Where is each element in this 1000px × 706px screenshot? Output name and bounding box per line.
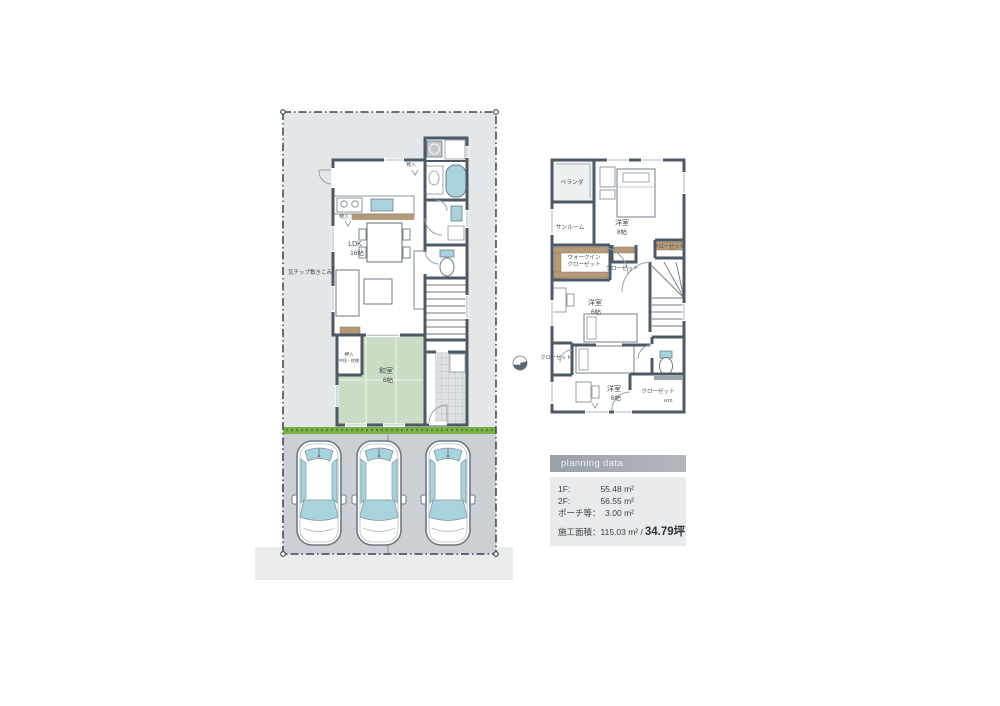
floorplan-drawing: 瓦チップ敷きこみ LDK 16帖 和室 6帖 押入 中段・枕棚 物入 物入 ベラ… — [0, 0, 1000, 706]
washroom-cabinet — [448, 226, 464, 240]
floor-2f-plan — [551, 159, 686, 414]
planning-total-label: 施工面積：115.03 m² / — [558, 527, 643, 537]
closet-mid-label: クローゼット — [605, 264, 638, 272]
planning-row-2f: 2F: 56.55 m² — [558, 495, 634, 507]
dining-set — [359, 223, 410, 262]
planning-row-1f: 1F: 55.48 m² — [558, 483, 634, 495]
closet-bottom-label: クローゼット — [641, 387, 674, 395]
bed-8 — [617, 169, 655, 217]
washitsu-size-label: 6帖 — [383, 375, 394, 384]
oshiire-note-label: 中段・枕棚 — [339, 357, 359, 363]
closet-bottom-note-label: H20 — [664, 398, 673, 404]
grass-strip — [283, 427, 496, 434]
planning-total-value: 34.79坪 — [645, 526, 685, 538]
room6a-label: 洋室 — [588, 298, 602, 307]
planning-row-value: 55.48 m² — [600, 483, 634, 495]
room6b-label: 洋室 — [607, 384, 621, 393]
planning-row-value: 3.00 m² — [605, 507, 634, 519]
ldk-size-label: 16帖 — [350, 248, 364, 257]
wic-label-2: クローゼット — [567, 260, 600, 268]
bath-vanity — [426, 166, 443, 194]
kitchen-counter — [334, 196, 414, 214]
car-3 — [421, 441, 475, 545]
sofa — [336, 270, 359, 316]
washer — [427, 141, 442, 157]
north-compass-icon — [511, 354, 528, 371]
bathtub — [446, 165, 466, 197]
kitchen-sink — [371, 199, 393, 211]
room6b-size-label: 6帖 — [611, 393, 622, 402]
bed-6b — [576, 346, 634, 373]
shoe-cabinet — [450, 354, 465, 372]
planning-row-label: ポーチ等： — [558, 507, 601, 519]
desk-8 — [600, 167, 615, 199]
closet-right-label: クローゼット — [653, 242, 684, 250]
storage-b-label: 物入 — [339, 213, 349, 220]
site-note-label: 瓦チップ敷きこみ — [288, 268, 333, 276]
planning-row-label: 1F: — [558, 483, 570, 495]
bed-6a — [584, 314, 637, 342]
planning-total: 施工面積：115.03 m² /34.79坪 — [558, 523, 678, 539]
sunroom-label: サンルーム — [556, 224, 585, 231]
planning-row-porch: ポーチ等： 3.00 m² — [558, 507, 634, 519]
washroom-sink — [451, 206, 462, 221]
car-1 — [292, 441, 346, 545]
room8-size-label: 8帖 — [617, 227, 628, 236]
veranda-label: ベランダ — [560, 178, 583, 186]
planning-row-label: 2F: — [558, 495, 570, 507]
planning-row-value: 56.55 m² — [600, 495, 634, 507]
bath-cabinet — [445, 140, 465, 159]
closet-left-label: クローゼット — [540, 353, 571, 361]
shelf-tan — [340, 327, 360, 334]
wic-label-1: ウォークイン — [567, 253, 601, 261]
tv-board — [414, 251, 424, 309]
room6a-size-label: 6帖 — [591, 307, 602, 316]
living-table — [364, 279, 392, 304]
kitchen-bar — [352, 214, 414, 220]
toilet-1f — [440, 250, 454, 276]
planning-data-header: planning data — [550, 455, 686, 472]
room8-label: 洋室 — [615, 218, 629, 227]
floor-1f-plan — [319, 138, 469, 427]
car-2 — [352, 441, 406, 545]
washitsu-label: 和室 — [379, 366, 393, 375]
planning-data-title: planning data — [561, 458, 623, 469]
storage-a-label: 物入 — [406, 161, 416, 168]
oshiire-label: 押入 — [344, 351, 354, 358]
ldk-label: LDK — [348, 241, 362, 248]
planning-data-panel: planning data 1F: 55.48 m² 2F: 56.55 m² … — [550, 455, 686, 546]
planning-data-body: 1F: 55.48 m² 2F: 56.55 m² ポーチ等： 3.00 m² … — [550, 477, 686, 546]
floorplan-page: 瓦チップ敷きこみ LDK 16帖 和室 6帖 押入 中段・枕棚 物入 物入 ベラ… — [0, 0, 1000, 706]
parked-cars — [292, 441, 475, 545]
